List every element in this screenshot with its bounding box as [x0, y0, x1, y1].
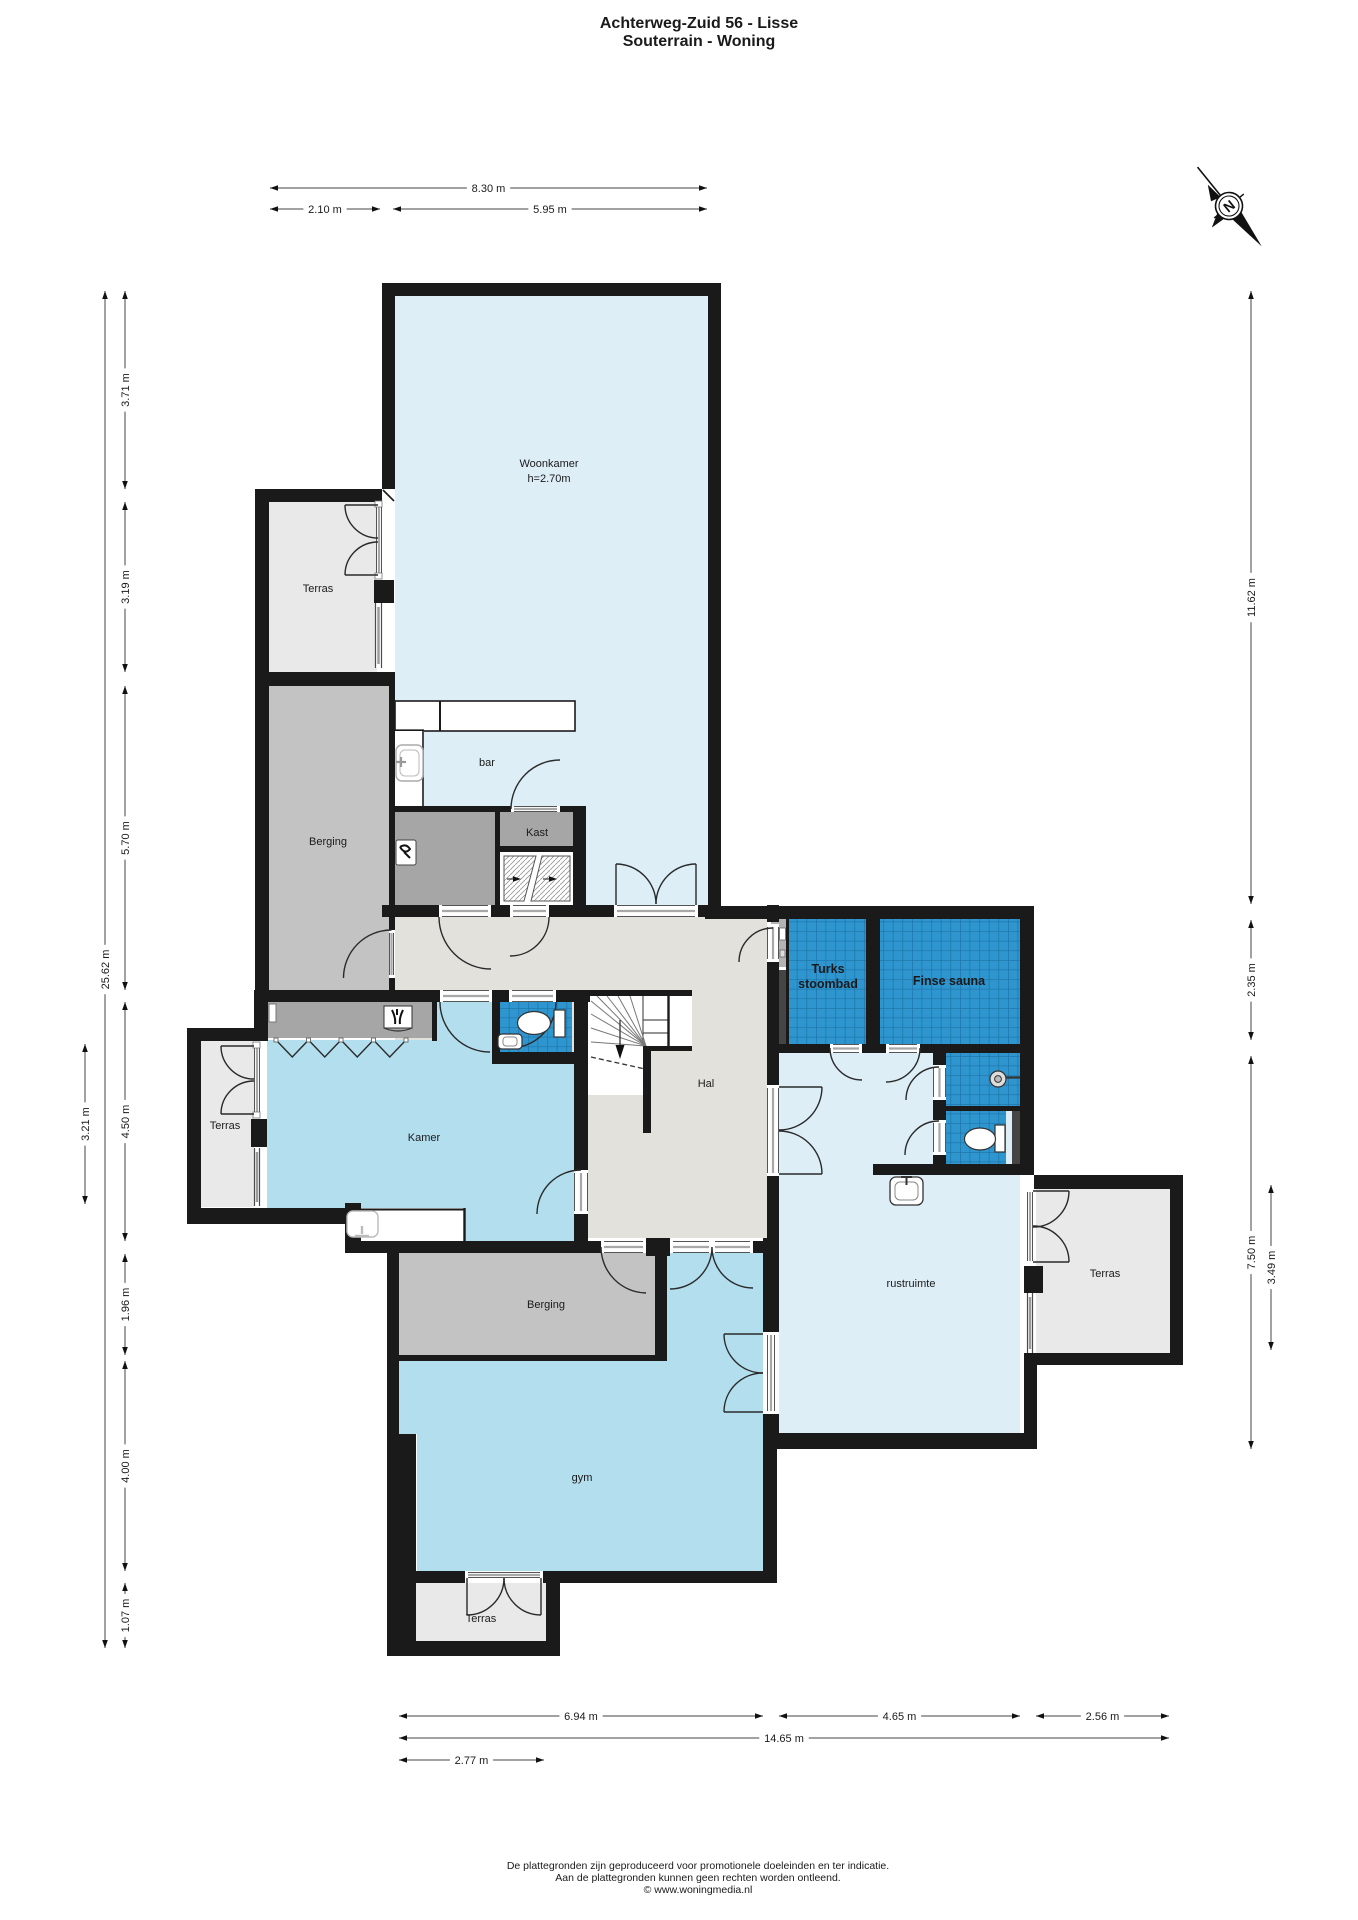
svg-text:4.50 m: 4.50 m: [120, 1105, 132, 1139]
svg-text:2.10 m: 2.10 m: [308, 204, 342, 216]
svg-text:Turks: Turks: [811, 962, 844, 976]
svg-text:bar: bar: [479, 757, 495, 769]
svg-text:4.65 m: 4.65 m: [883, 1711, 917, 1723]
svg-text:Aan de plattegronden kunnen ge: Aan de plattegronden kunnen geen rechten…: [555, 1872, 840, 1884]
svg-text:3.49 m: 3.49 m: [1266, 1251, 1278, 1285]
svg-text:3.21 m: 3.21 m: [80, 1107, 92, 1141]
svg-text:h=2.70m: h=2.70m: [527, 473, 570, 485]
svg-text:25.62 m: 25.62 m: [100, 950, 112, 990]
svg-text:3.71 m: 3.71 m: [120, 373, 132, 407]
svg-text:11.62 m: 11.62 m: [1246, 578, 1258, 617]
svg-text:gym: gym: [572, 1472, 593, 1484]
svg-text:Kast: Kast: [526, 827, 548, 839]
svg-text:Berging: Berging: [309, 836, 347, 848]
svg-text:14.65 m: 14.65 m: [764, 1733, 804, 1745]
svg-text:6.94 m: 6.94 m: [564, 1711, 598, 1723]
svg-text:rustruimte: rustruimte: [887, 1278, 936, 1290]
svg-text:Terras: Terras: [303, 583, 334, 595]
svg-text:stoombad: stoombad: [798, 977, 858, 991]
svg-text:1.07 m: 1.07 m: [120, 1599, 132, 1633]
svg-text:1.96 m: 1.96 m: [120, 1288, 132, 1322]
svg-text:Terras: Terras: [210, 1120, 241, 1132]
svg-text:5.70 m: 5.70 m: [120, 821, 132, 855]
svg-text:2.77 m: 2.77 m: [455, 1755, 489, 1767]
svg-text:8.30 m: 8.30 m: [472, 183, 506, 195]
svg-text:Achterweg-Zuid 56 - Lisse: Achterweg-Zuid 56 - Lisse: [600, 15, 798, 32]
svg-text:4.00 m: 4.00 m: [120, 1449, 132, 1483]
svg-text:Souterrain - Woning: Souterrain - Woning: [623, 33, 776, 50]
svg-text:Terras: Terras: [1090, 1268, 1121, 1280]
svg-text:Hal: Hal: [698, 1078, 715, 1090]
svg-text:3.19 m: 3.19 m: [120, 570, 132, 604]
svg-text:Berging: Berging: [527, 1299, 565, 1311]
svg-text:5.95 m: 5.95 m: [533, 204, 567, 216]
svg-text:Finse sauna: Finse sauna: [913, 974, 986, 988]
svg-text:2.56 m: 2.56 m: [1086, 1711, 1120, 1723]
svg-text:7.50 m: 7.50 m: [1246, 1236, 1258, 1270]
svg-text:Kamer: Kamer: [408, 1132, 441, 1144]
svg-text:Terras: Terras: [466, 1613, 497, 1625]
svg-text:2.35 m: 2.35 m: [1246, 963, 1258, 997]
svg-text:Woonkamer: Woonkamer: [519, 458, 578, 470]
svg-text:De plattegronden zijn geproduc: De plattegronden zijn geproduceerd voor …: [507, 1860, 889, 1872]
svg-text:© www.woningmedia.nl: © www.woningmedia.nl: [644, 1884, 753, 1896]
